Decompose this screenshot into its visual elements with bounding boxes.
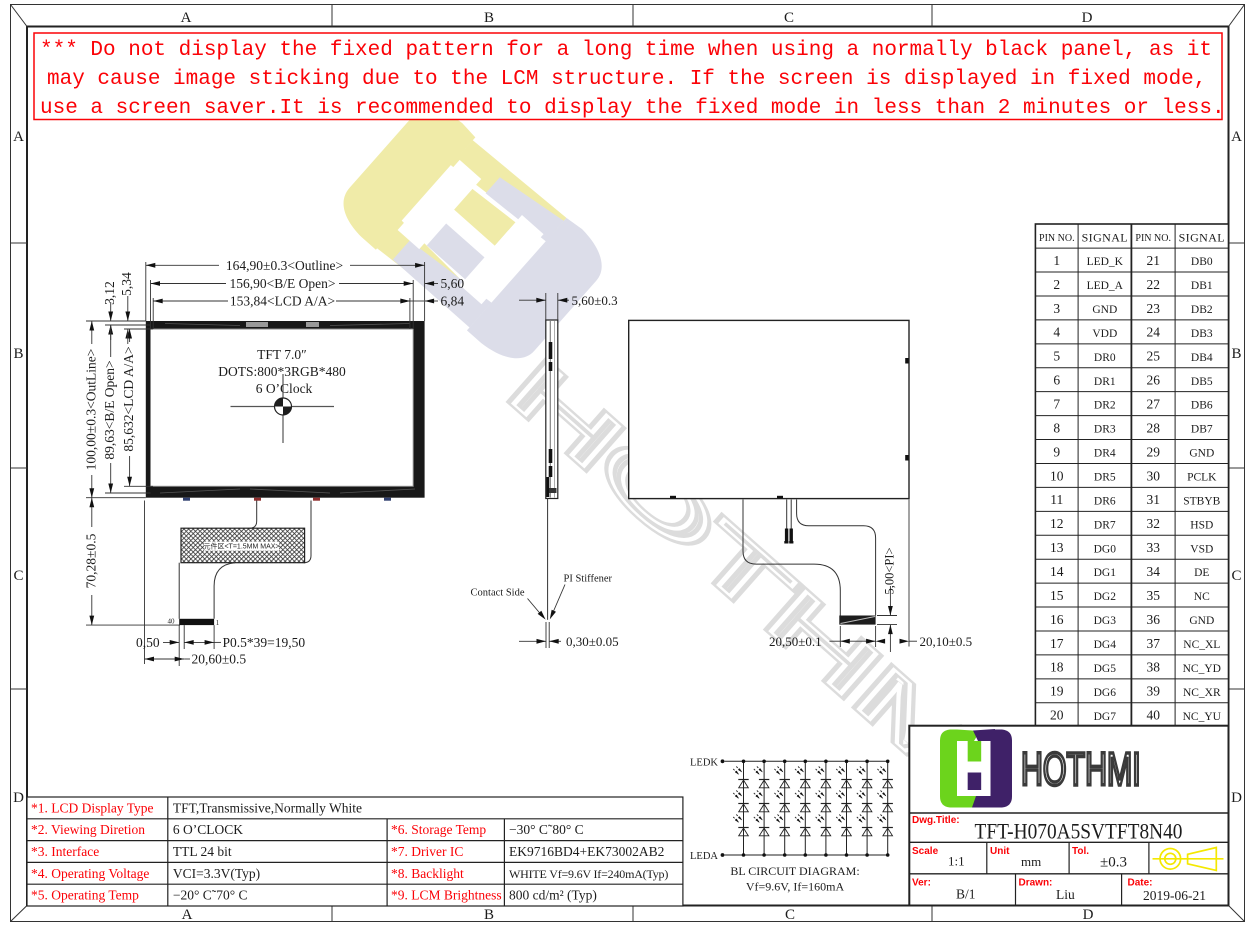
- svg-text:GND: GND: [1092, 304, 1117, 316]
- svg-text:TTL 24 bit: TTL 24 bit: [173, 844, 232, 859]
- svg-text:34: 34: [1146, 564, 1160, 579]
- svg-text:LEDA: LEDA: [690, 851, 718, 862]
- svg-text:−30° C˜80° C: −30° C˜80° C: [509, 822, 584, 837]
- svg-text:DR6: DR6: [1094, 495, 1116, 507]
- svg-text:DG2: DG2: [1094, 591, 1117, 603]
- svg-text:NC_XR: NC_XR: [1183, 687, 1221, 699]
- svg-text:100,00±0.3<OutLine>: 100,00±0.3<OutLine>: [83, 349, 98, 471]
- svg-text:29: 29: [1146, 444, 1160, 459]
- svg-text:1: 1: [216, 619, 220, 627]
- svg-text:8: 8: [1053, 420, 1060, 435]
- svg-text:38: 38: [1146, 660, 1160, 675]
- svg-text:0,30±0.05: 0,30±0.05: [566, 634, 619, 649]
- svg-text:P0.5*39=19,50: P0.5*39=19,50: [223, 635, 306, 650]
- svg-text:40: 40: [168, 618, 176, 626]
- svg-text:*7. Driver IC: *7. Driver IC: [391, 844, 463, 859]
- svg-text:EK9716BD4+EK73002AB2: EK9716BD4+EK73002AB2: [509, 844, 664, 859]
- svg-text:6 O’CLOCK: 6 O’CLOCK: [173, 822, 243, 837]
- svg-text:85,632<LCD A/A>: 85,632<LCD A/A>: [121, 346, 136, 451]
- svg-text:DB0: DB0: [1191, 256, 1213, 268]
- svg-text:21: 21: [1146, 253, 1160, 268]
- svg-text:800 cd/m² (Typ): 800 cd/m² (Typ): [509, 888, 597, 903]
- svg-text:DR5: DR5: [1094, 472, 1116, 484]
- svg-text:TFT 7.0″: TFT 7.0″: [257, 347, 307, 362]
- svg-text:PI Stiffener: PI Stiffener: [564, 574, 613, 585]
- svg-text:DR3: DR3: [1094, 424, 1116, 436]
- svg-text:18: 18: [1050, 660, 1064, 675]
- svg-text:9: 9: [1053, 444, 1060, 459]
- svg-text:23: 23: [1146, 301, 1160, 316]
- svg-text:D: D: [1231, 790, 1242, 806]
- svg-text:Unit: Unit: [990, 846, 1010, 857]
- svg-text:*1. LCD Display Type: *1. LCD Display Type: [31, 800, 154, 815]
- svg-text:VDD: VDD: [1092, 328, 1117, 340]
- svg-text:6 O’Clock: 6 O’Clock: [256, 381, 313, 396]
- svg-text:33: 33: [1146, 540, 1160, 555]
- svg-text:DR7: DR7: [1094, 519, 1116, 531]
- svg-text:PIN NO.: PIN NO.: [1039, 233, 1075, 244]
- svg-text:36: 36: [1146, 612, 1160, 627]
- svg-text:mm: mm: [1021, 854, 1041, 869]
- svg-text:22: 22: [1146, 277, 1160, 292]
- svg-text:LEDK: LEDK: [690, 758, 718, 769]
- svg-text:5: 5: [1053, 349, 1060, 364]
- svg-text:6: 6: [1053, 373, 1060, 388]
- svg-text:DB4: DB4: [1191, 352, 1213, 364]
- svg-text:SIGNAL: SIGNAL: [1179, 231, 1225, 245]
- svg-text:13: 13: [1050, 540, 1064, 555]
- svg-text:*3. Interface: *3. Interface: [31, 844, 99, 859]
- svg-text:HOTHMI: HOTHMI: [1021, 745, 1141, 796]
- svg-text:Scale: Scale: [912, 846, 939, 857]
- svg-text:26: 26: [1146, 373, 1160, 388]
- svg-text:1:1: 1:1: [948, 854, 965, 869]
- svg-text:GND: GND: [1189, 448, 1214, 460]
- svg-text:DG7: DG7: [1094, 711, 1117, 723]
- svg-text:DG6: DG6: [1094, 687, 1117, 699]
- svg-text:0,50: 0,50: [136, 635, 160, 650]
- svg-text:DB7: DB7: [1191, 424, 1213, 436]
- svg-text:35: 35: [1146, 588, 1160, 603]
- svg-text:DG5: DG5: [1094, 663, 1117, 675]
- svg-text:A: A: [182, 907, 193, 923]
- svg-text:*5. Operating Temp: *5. Operating Temp: [31, 888, 139, 903]
- svg-text:Dwg.Title:: Dwg.Title:: [912, 815, 960, 826]
- svg-text:SIGNAL: SIGNAL: [1082, 231, 1128, 245]
- svg-text:LED_K: LED_K: [1087, 256, 1124, 268]
- svg-text:LED_A: LED_A: [1087, 280, 1124, 292]
- svg-text:±0.3: ±0.3: [1100, 855, 1127, 871]
- svg-text:DB1: DB1: [1191, 280, 1213, 292]
- svg-text:DOTS:800*3RGB*480: DOTS:800*3RGB*480: [218, 364, 346, 379]
- svg-text:DB2: DB2: [1191, 304, 1213, 316]
- svg-text:37: 37: [1146, 636, 1160, 651]
- svg-text:28: 28: [1146, 420, 1160, 435]
- svg-text:DE: DE: [1194, 567, 1209, 579]
- svg-text:GND: GND: [1189, 615, 1214, 627]
- svg-text:HSD: HSD: [1190, 519, 1213, 531]
- svg-text:A: A: [13, 129, 24, 145]
- svg-text:17: 17: [1050, 636, 1064, 651]
- svg-text:C: C: [784, 10, 794, 26]
- svg-text:NC: NC: [1194, 591, 1210, 603]
- svg-text:Liu: Liu: [1056, 887, 1075, 902]
- svg-text:C: C: [1231, 568, 1241, 584]
- svg-text:DG1: DG1: [1094, 567, 1117, 579]
- svg-text:WHITE Vf=9.6V If=240mA(Typ): WHITE Vf=9.6V If=240mA(Typ): [509, 867, 668, 881]
- svg-text:19: 19: [1050, 684, 1064, 699]
- svg-text:D: D: [1082, 10, 1093, 26]
- svg-text:B: B: [484, 907, 494, 923]
- svg-text:5,60: 5,60: [441, 276, 465, 291]
- svg-text:DB3: DB3: [1191, 328, 1213, 340]
- svg-text:D: D: [1083, 907, 1094, 923]
- svg-text:DG0: DG0: [1094, 543, 1117, 555]
- svg-text:7: 7: [1053, 397, 1060, 412]
- svg-text:DG4: DG4: [1094, 639, 1117, 651]
- svg-text:70,28±0.5: 70,28±0.5: [83, 533, 98, 588]
- svg-text:NC_YU: NC_YU: [1183, 711, 1222, 723]
- svg-text:C: C: [785, 907, 795, 923]
- svg-text:Ver:: Ver:: [912, 878, 931, 889]
- svg-text:3: 3: [1053, 301, 1060, 316]
- svg-text:DR4: DR4: [1094, 448, 1116, 460]
- svg-text:DB5: DB5: [1191, 376, 1213, 388]
- svg-text:B: B: [1231, 346, 1241, 362]
- svg-text:11: 11: [1050, 492, 1063, 507]
- svg-text:B: B: [13, 346, 23, 362]
- svg-text:39: 39: [1146, 684, 1160, 699]
- svg-text:PIN NO.: PIN NO.: [1135, 233, 1171, 244]
- svg-text:6,84: 6,84: [441, 294, 465, 309]
- svg-text:STBYB: STBYB: [1183, 495, 1220, 507]
- svg-text:may cause image sticking due t: may cause image sticking due to the LCM …: [47, 68, 1206, 91]
- svg-text:*2. Viewing Diretion: *2. Viewing Diretion: [31, 822, 145, 837]
- svg-text:DR0: DR0: [1094, 352, 1116, 364]
- svg-text:NC_YD: NC_YD: [1183, 663, 1221, 675]
- svg-text:3,12: 3,12: [102, 281, 117, 305]
- svg-text:TFT,Transmissive,Normally Whit: TFT,Transmissive,Normally White: [173, 800, 362, 815]
- svg-text:1: 1: [1053, 253, 1060, 268]
- svg-text:−20° C˜70° C: −20° C˜70° C: [173, 888, 248, 903]
- svg-text:10: 10: [1050, 468, 1064, 483]
- svg-text:DR2: DR2: [1094, 400, 1116, 412]
- svg-text:156,90<B/E Open>: 156,90<B/E Open>: [230, 276, 336, 291]
- svg-text:20,10±0.5: 20,10±0.5: [920, 634, 973, 649]
- svg-text:Drawn:: Drawn:: [1019, 878, 1053, 889]
- svg-text:元件区<T=1.5MM MAX>: 元件区<T=1.5MM MAX>: [203, 542, 279, 551]
- svg-text:Contact Side: Contact Side: [471, 588, 525, 599]
- svg-text:2: 2: [1053, 277, 1060, 292]
- svg-text:153,84<LCD A/A>: 153,84<LCD A/A>: [230, 294, 335, 309]
- svg-text:DR1: DR1: [1094, 376, 1116, 388]
- svg-text:C: C: [13, 568, 23, 584]
- svg-text:5,00<PI>: 5,00<PI>: [883, 547, 897, 594]
- svg-text:Vf=9.6V, If=160mA: Vf=9.6V, If=160mA: [746, 880, 845, 894]
- svg-text:DB6: DB6: [1191, 400, 1213, 412]
- svg-text:2019-06-21: 2019-06-21: [1143, 888, 1206, 903]
- svg-text:89,63<B/E Open>: 89,63<B/E Open>: [102, 360, 117, 459]
- svg-text:Date:: Date:: [1128, 878, 1153, 889]
- svg-text:TFT-H070A5SVTFT8N40: TFT-H070A5SVTFT8N40: [975, 820, 1183, 843]
- svg-text:*9. LCM Brightness: *9. LCM Brightness: [391, 888, 502, 903]
- svg-text:Tol.: Tol.: [1072, 846, 1089, 857]
- svg-text:27: 27: [1146, 397, 1160, 412]
- svg-text:24: 24: [1146, 325, 1160, 340]
- svg-text:14: 14: [1050, 564, 1064, 579]
- svg-text:NC_XL: NC_XL: [1183, 639, 1220, 651]
- svg-text:31: 31: [1146, 492, 1160, 507]
- svg-text:40: 40: [1146, 708, 1160, 723]
- svg-text:DG3: DG3: [1094, 615, 1117, 627]
- svg-text:20,50±0.1: 20,50±0.1: [769, 634, 822, 649]
- svg-text:VCI=3.3V(Typ): VCI=3.3V(Typ): [173, 866, 260, 881]
- svg-text:164,90±0.3<Outline>: 164,90±0.3<Outline>: [226, 258, 343, 273]
- svg-text:12: 12: [1050, 516, 1064, 531]
- svg-text:BL CIRCUIT DIAGRAM:: BL CIRCUIT DIAGRAM:: [730, 864, 859, 878]
- svg-text:5,60±0.3: 5,60±0.3: [572, 293, 618, 308]
- svg-text:20: 20: [1050, 708, 1064, 723]
- svg-text:use a screen saver.It is recom: use a screen saver.It is recommended to …: [40, 97, 1225, 120]
- svg-text:*6. Storage Temp: *6. Storage Temp: [391, 822, 486, 837]
- svg-text:A: A: [1231, 129, 1242, 145]
- svg-text:A: A: [181, 10, 192, 26]
- svg-text:16: 16: [1050, 612, 1064, 627]
- svg-text:32: 32: [1146, 516, 1160, 531]
- svg-text:*8. Backlight: *8. Backlight: [391, 866, 464, 881]
- svg-text:*** Do not display the fixed p: *** Do not display the fixed pattern for…: [40, 39, 1212, 62]
- svg-text:*4. Operating Voltage: *4. Operating Voltage: [31, 866, 149, 881]
- svg-text:5,34: 5,34: [119, 272, 134, 296]
- svg-text:15: 15: [1050, 588, 1064, 603]
- svg-text:B: B: [484, 10, 494, 26]
- svg-text:PCLK: PCLK: [1187, 472, 1217, 484]
- svg-text:VSD: VSD: [1190, 543, 1213, 555]
- svg-text:4: 4: [1053, 325, 1060, 340]
- svg-text:20,60±0.5: 20,60±0.5: [192, 652, 247, 667]
- svg-text:B/1: B/1: [956, 887, 976, 902]
- svg-text:D: D: [13, 790, 24, 806]
- svg-text:25: 25: [1146, 349, 1160, 364]
- svg-text:30: 30: [1146, 468, 1160, 483]
